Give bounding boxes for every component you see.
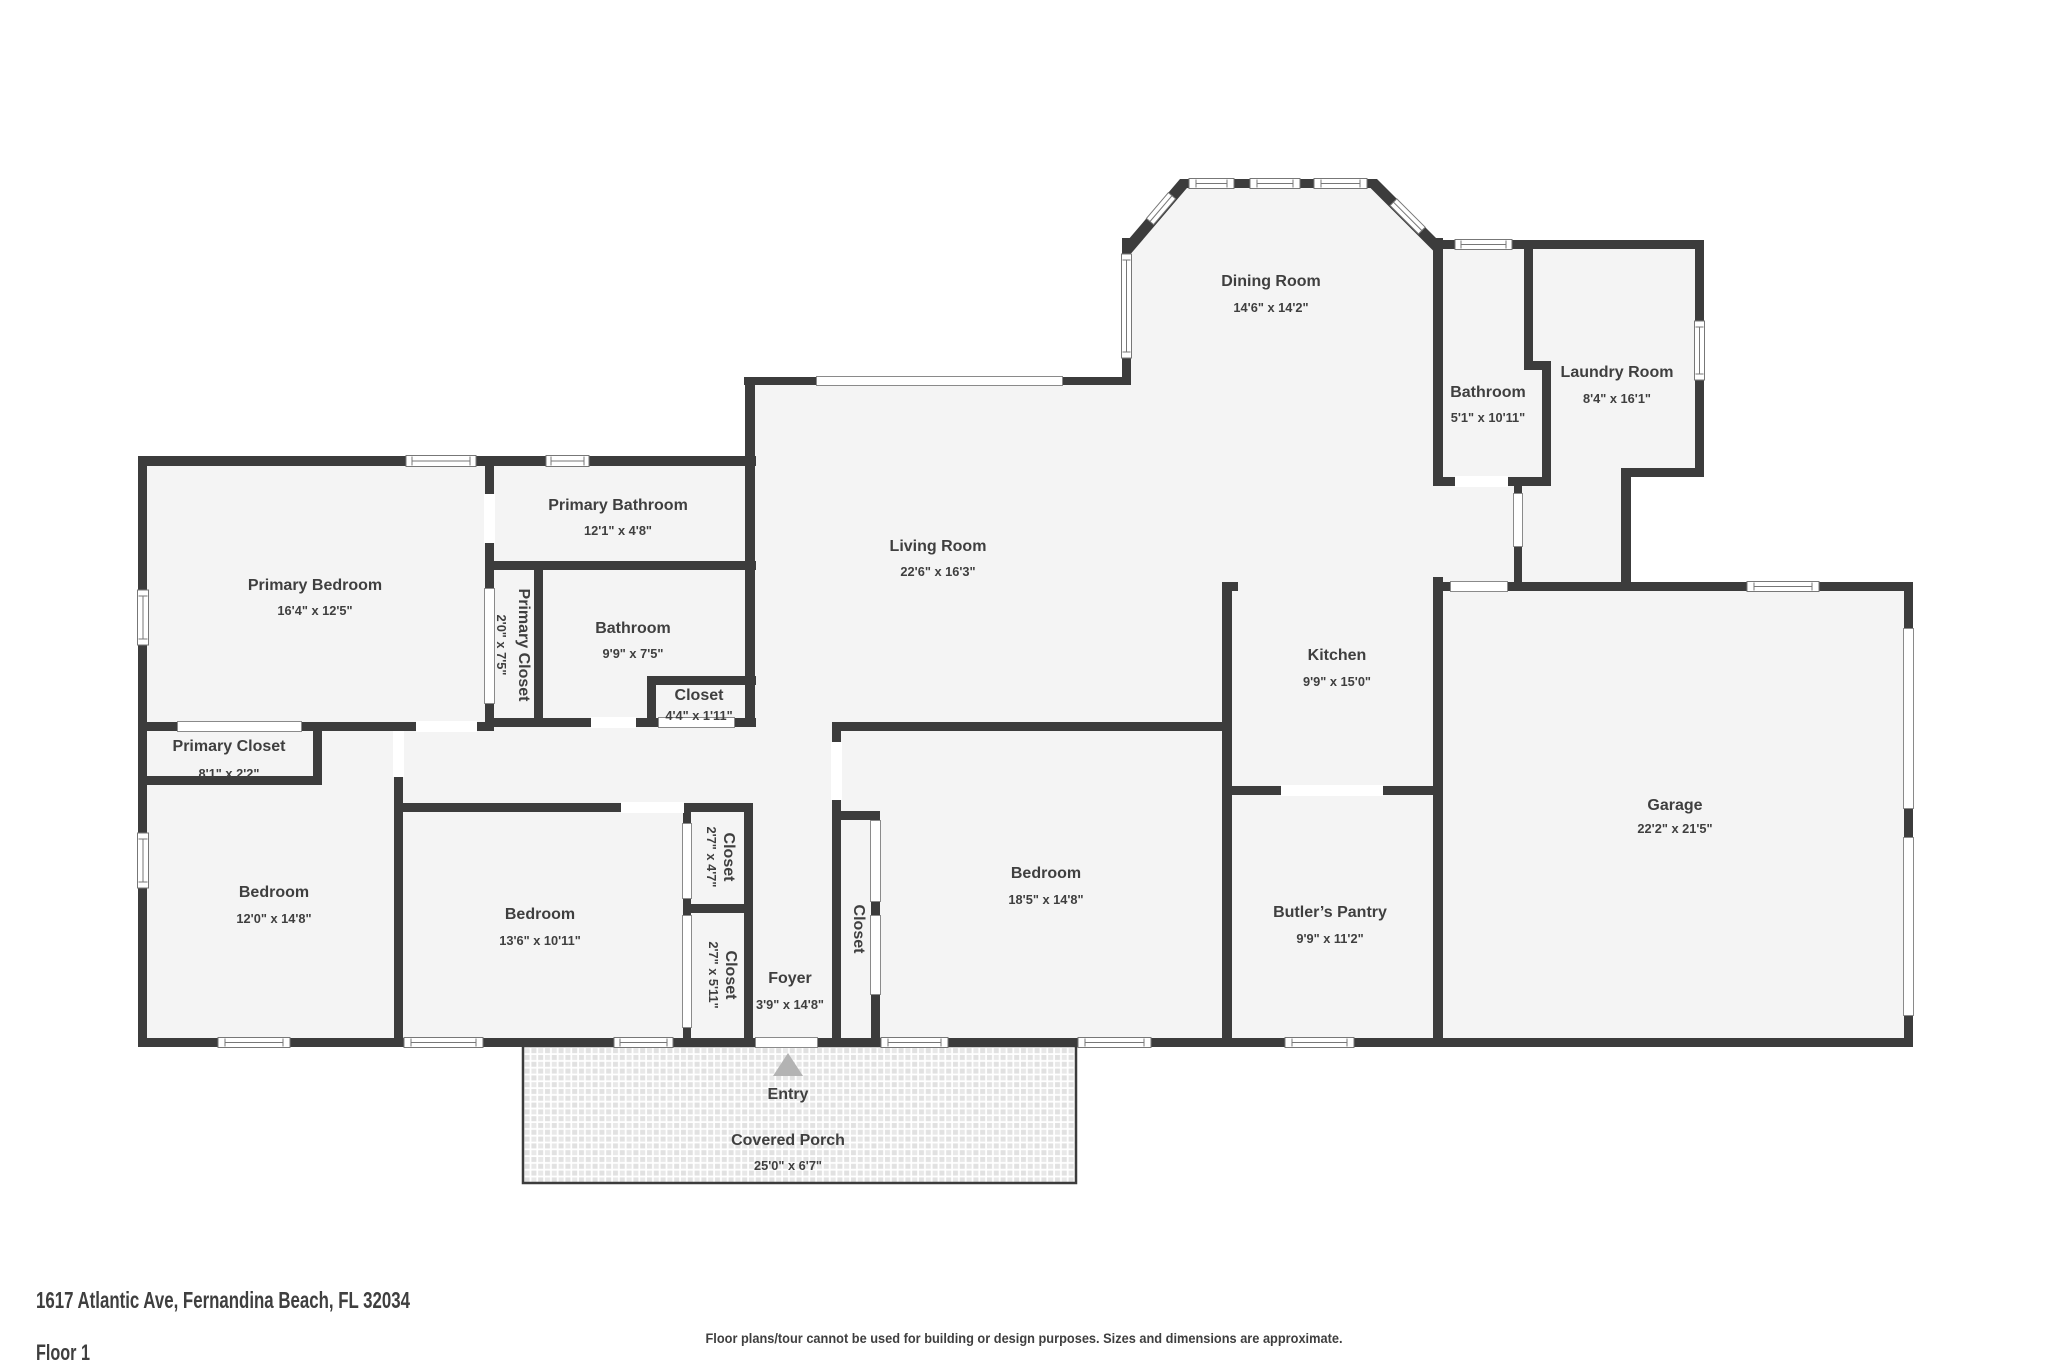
svg-text:Laundry Room: Laundry Room — [1561, 364, 1674, 381]
svg-text:Closet: Closet — [722, 951, 739, 1001]
svg-text:Bathroom: Bathroom — [1450, 384, 1526, 401]
svg-text:Bedroom: Bedroom — [505, 906, 575, 923]
svg-text:Closet: Closet — [720, 833, 737, 883]
svg-text:5'1" x 10'11": 5'1" x 10'11" — [1451, 410, 1525, 425]
svg-text:9'9" x 7'5": 9'9" x 7'5" — [603, 646, 664, 661]
svg-text:9'9" x 11'2": 9'9" x 11'2" — [1296, 931, 1363, 946]
svg-text:2'7" x 5'11": 2'7" x 5'11" — [706, 941, 721, 1008]
svg-text:16'4" x 12'5": 16'4" x 12'5" — [277, 603, 352, 618]
svg-text:3'9" x 14'8": 3'9" x 14'8" — [756, 997, 824, 1012]
svg-text:8'1" x 2'2": 8'1" x 2'2" — [199, 766, 260, 781]
svg-text:Living Room: Living Room — [890, 538, 987, 555]
svg-text:Primary Bathroom: Primary Bathroom — [548, 497, 688, 514]
svg-text:Primary Bedroom: Primary Bedroom — [248, 577, 382, 594]
svg-text:Entry: Entry — [768, 1086, 809, 1103]
svg-text:22'2" x 21'5": 22'2" x 21'5" — [1637, 821, 1712, 836]
svg-text:Foyer: Foyer — [768, 970, 812, 987]
svg-text:Covered Porch: Covered Porch — [731, 1132, 845, 1149]
svg-text:18'5" x 14'8": 18'5" x 14'8" — [1008, 892, 1083, 907]
svg-text:1617 Atlantic Ave, Fernandina: 1617 Atlantic Ave, Fernandina Beach, FL … — [36, 1287, 410, 1313]
svg-text:Floor plans/tour cannot be use: Floor plans/tour cannot be used for buil… — [706, 1331, 1343, 1346]
svg-text:9'9" x 15'0": 9'9" x 15'0" — [1303, 674, 1371, 689]
svg-text:2'0" x 7'5": 2'0" x 7'5" — [494, 615, 509, 676]
svg-text:Primary Closet: Primary Closet — [515, 589, 532, 703]
svg-text:12'0" x 14'8": 12'0" x 14'8" — [236, 911, 311, 926]
svg-text:Bathroom: Bathroom — [595, 620, 671, 637]
svg-text:14'6" x 14'2": 14'6" x 14'2" — [1233, 300, 1308, 315]
svg-text:22'6" x 16'3": 22'6" x 16'3" — [900, 564, 975, 579]
svg-text:Kitchen: Kitchen — [1308, 647, 1367, 664]
svg-text:Garage: Garage — [1647, 797, 1702, 814]
svg-text:8'4" x 16'1": 8'4" x 16'1" — [1583, 391, 1651, 406]
svg-text:Bedroom: Bedroom — [1011, 865, 1081, 882]
svg-text:Closet: Closet — [850, 905, 867, 955]
svg-text:Dining Room: Dining Room — [1221, 273, 1321, 290]
svg-text:25'0" x 6'7": 25'0" x 6'7" — [754, 1158, 822, 1173]
svg-text:12'1" x 4'8": 12'1" x 4'8" — [584, 523, 652, 538]
svg-text:4'4" x 1'11": 4'4" x 1'11" — [665, 708, 732, 723]
svg-text:Closet: Closet — [675, 687, 725, 704]
svg-text:Primary Closet: Primary Closet — [173, 738, 287, 755]
svg-text:Floor 1: Floor 1 — [36, 1340, 90, 1365]
svg-text:13'6" x 10'11": 13'6" x 10'11" — [499, 933, 581, 948]
svg-text:2'7" x 4'7": 2'7" x 4'7" — [704, 827, 719, 888]
svg-text:Bedroom: Bedroom — [239, 884, 309, 901]
svg-text:Butler’s Pantry: Butler’s Pantry — [1273, 904, 1387, 921]
